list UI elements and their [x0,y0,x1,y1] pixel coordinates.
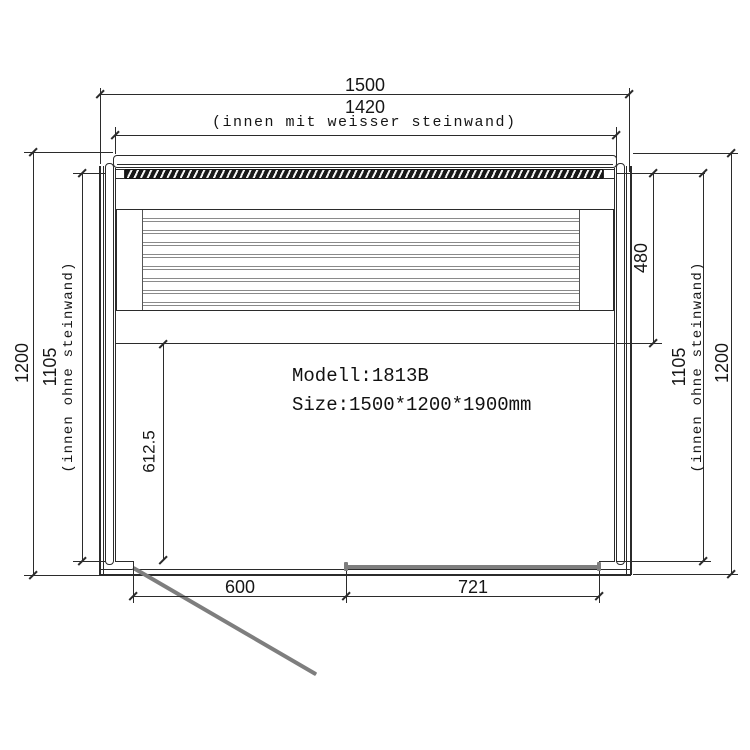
front-wall-inner-right [599,561,615,562]
ext-line [599,571,600,603]
right-wall-panel [616,163,625,565]
dim-value: 1200 [13,343,32,383]
ext-line [346,571,347,603]
dim-value: 612.5 [140,430,159,473]
top-panel [113,155,617,168]
left-wall-panel [105,163,114,565]
dim-bench-depth-label: 480 [632,223,650,293]
stone-wall-end-left [115,169,125,179]
dim-note: (innen ohne steinwand) [689,261,707,472]
dim-floor-front-depth-label: 612.5 [141,417,158,487]
dim-bench-depth-line [653,173,654,343]
ext-line [73,173,106,174]
stone-wall-hatch [125,169,603,179]
dim-outer-width-label: 1500 [315,76,415,94]
dim-value: 1105 [670,348,689,387]
model-name-text: Modell:1813B [292,362,552,391]
dim-floor-front-depth-line [163,344,164,560]
dim-tick [159,556,168,565]
dim-left-inner-depth-label: 1105 (innen ohne steinwand) [39,217,79,517]
glass-panel [346,565,599,569]
dim-door-width-label: 600 [190,578,290,596]
ext-line [24,575,99,576]
dim-value: 480 [632,243,651,273]
ext-line [633,574,738,575]
bench-slats [142,210,580,310]
bench-platform-edge [116,343,614,344]
dim-value: 1105 [41,348,60,387]
left-wall-outer-line2 [103,166,104,575]
glass-panel-cap-left [344,562,348,571]
top-panel-inner-line [117,164,613,165]
ext-line [616,173,705,174]
dim-note: (innen ohne steinwand) [60,261,78,472]
ext-line [24,152,113,153]
dim-left-inner-depth-line [82,173,83,561]
ext-line [73,561,106,562]
dim-inner-width-note: (innen mit weisser steinwand) [212,114,516,131]
ext-line [633,153,738,154]
ext-line [133,563,134,603]
model-info: Modell:1813B Size:1500*1200*1900mm [292,362,552,420]
front-wall-inner-left [115,561,134,562]
right-wall-inner-face [614,168,615,561]
glass-panel-cap-right [597,562,601,571]
dim-left-outer-depth-label: 1200 [13,328,31,398]
dim-right-outer-depth-label: 1200 [713,328,731,398]
ext-line [629,88,630,172]
right-wall-outer-line2 [626,166,627,575]
dim-value: 1200 [713,343,732,383]
ext-line [616,343,662,344]
dim-right-inner-depth-label: 1105 (innen ohne steinwand) [668,217,708,517]
dim-inner-width-line [115,135,616,136]
front-outer-line [99,574,631,576]
model-size-text: Size:1500*1200*1900mm [292,391,552,420]
dim-left-outer-depth-line [33,152,34,575]
dim-glass-width-label: 721 [423,578,523,596]
front-sill-line [99,569,631,570]
sauna-technical-drawing: 1500 1420 (innen mit weisser steinwand) … [0,0,750,750]
left-wall-outer-line [99,166,101,575]
ext-line [616,561,711,562]
